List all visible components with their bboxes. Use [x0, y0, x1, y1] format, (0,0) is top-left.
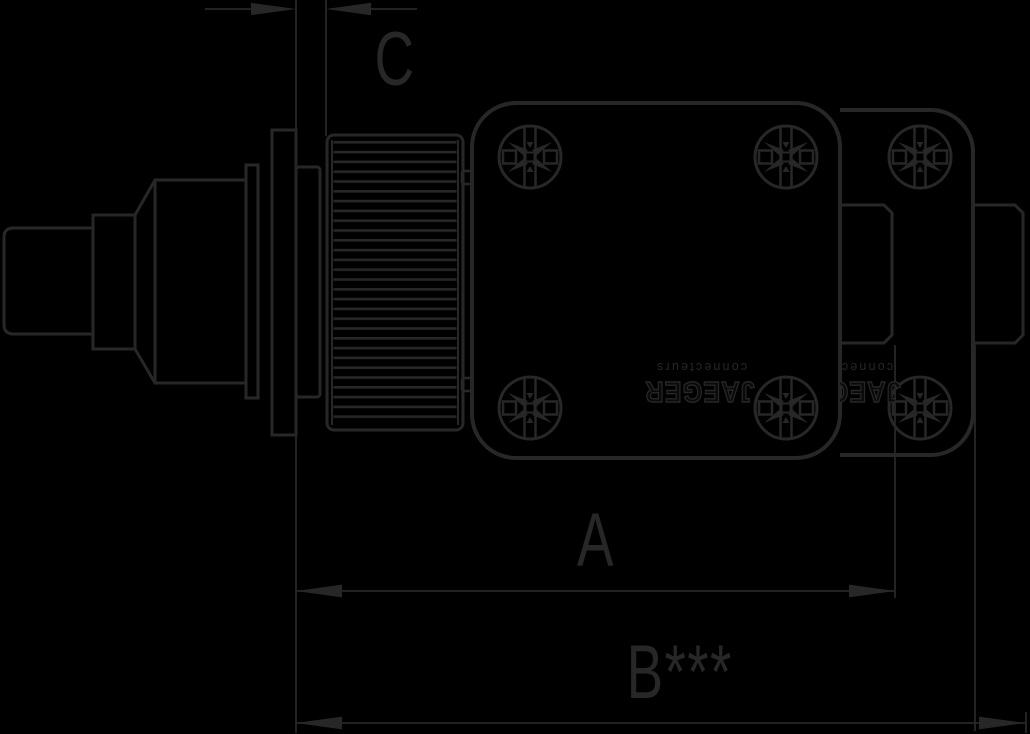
dim-b-arrow-right [979, 717, 1025, 730]
knurl-ribs [334, 141, 457, 425]
brand-tagline: connecteurs [840, 360, 908, 374]
boot-cone-body [135, 180, 246, 383]
dim-c-arrow-left [251, 3, 296, 15]
dimension-label-a: A [574, 503, 617, 579]
dim-a-arrow-right [849, 585, 895, 598]
screw-head-icon [499, 377, 561, 439]
panel-gasket [296, 167, 320, 397]
brand-marking-front: JAEGER connecteurs [640, 360, 762, 406]
dimension-c-lines [205, 3, 417, 15]
dim-a-arrow-left [296, 585, 342, 598]
screw-head-icon [889, 126, 951, 188]
brand-tagline: connecteurs [640, 360, 762, 374]
screw-head-icon [499, 126, 561, 188]
screw-head-icon [755, 377, 817, 439]
rear-termination-block [973, 205, 1023, 343]
body-ring [246, 165, 258, 398]
dimension-b-lines [296, 717, 1025, 730]
panel-plate [272, 130, 296, 435]
dimension-label-c: C [373, 22, 416, 98]
cable-boot-profile [4, 130, 320, 435]
technical-drawing-connector-side-view: C A B*** JAEGER connecteurs JAEGER conne… [0, 0, 1030, 734]
boot-step-2 [93, 215, 135, 349]
receptacle-barrel [840, 205, 892, 343]
boot-step-1 [4, 228, 93, 334]
brand-marking-rear-clip: JAEGER connecteurs [840, 360, 916, 410]
knurled-coupling-nut [327, 135, 472, 430]
brand-name: JAEGER [840, 376, 901, 406]
brand-marking-rear: JAEGER connecteurs [840, 360, 908, 406]
dimension-a-lines [296, 585, 895, 598]
dim-c-arrow-right [326, 3, 371, 15]
screw-head-icon [755, 126, 817, 188]
brand-name: JAEGER [647, 376, 754, 406]
dim-b-arrow-left [296, 717, 342, 730]
dimension-label-b: B*** [627, 635, 728, 711]
